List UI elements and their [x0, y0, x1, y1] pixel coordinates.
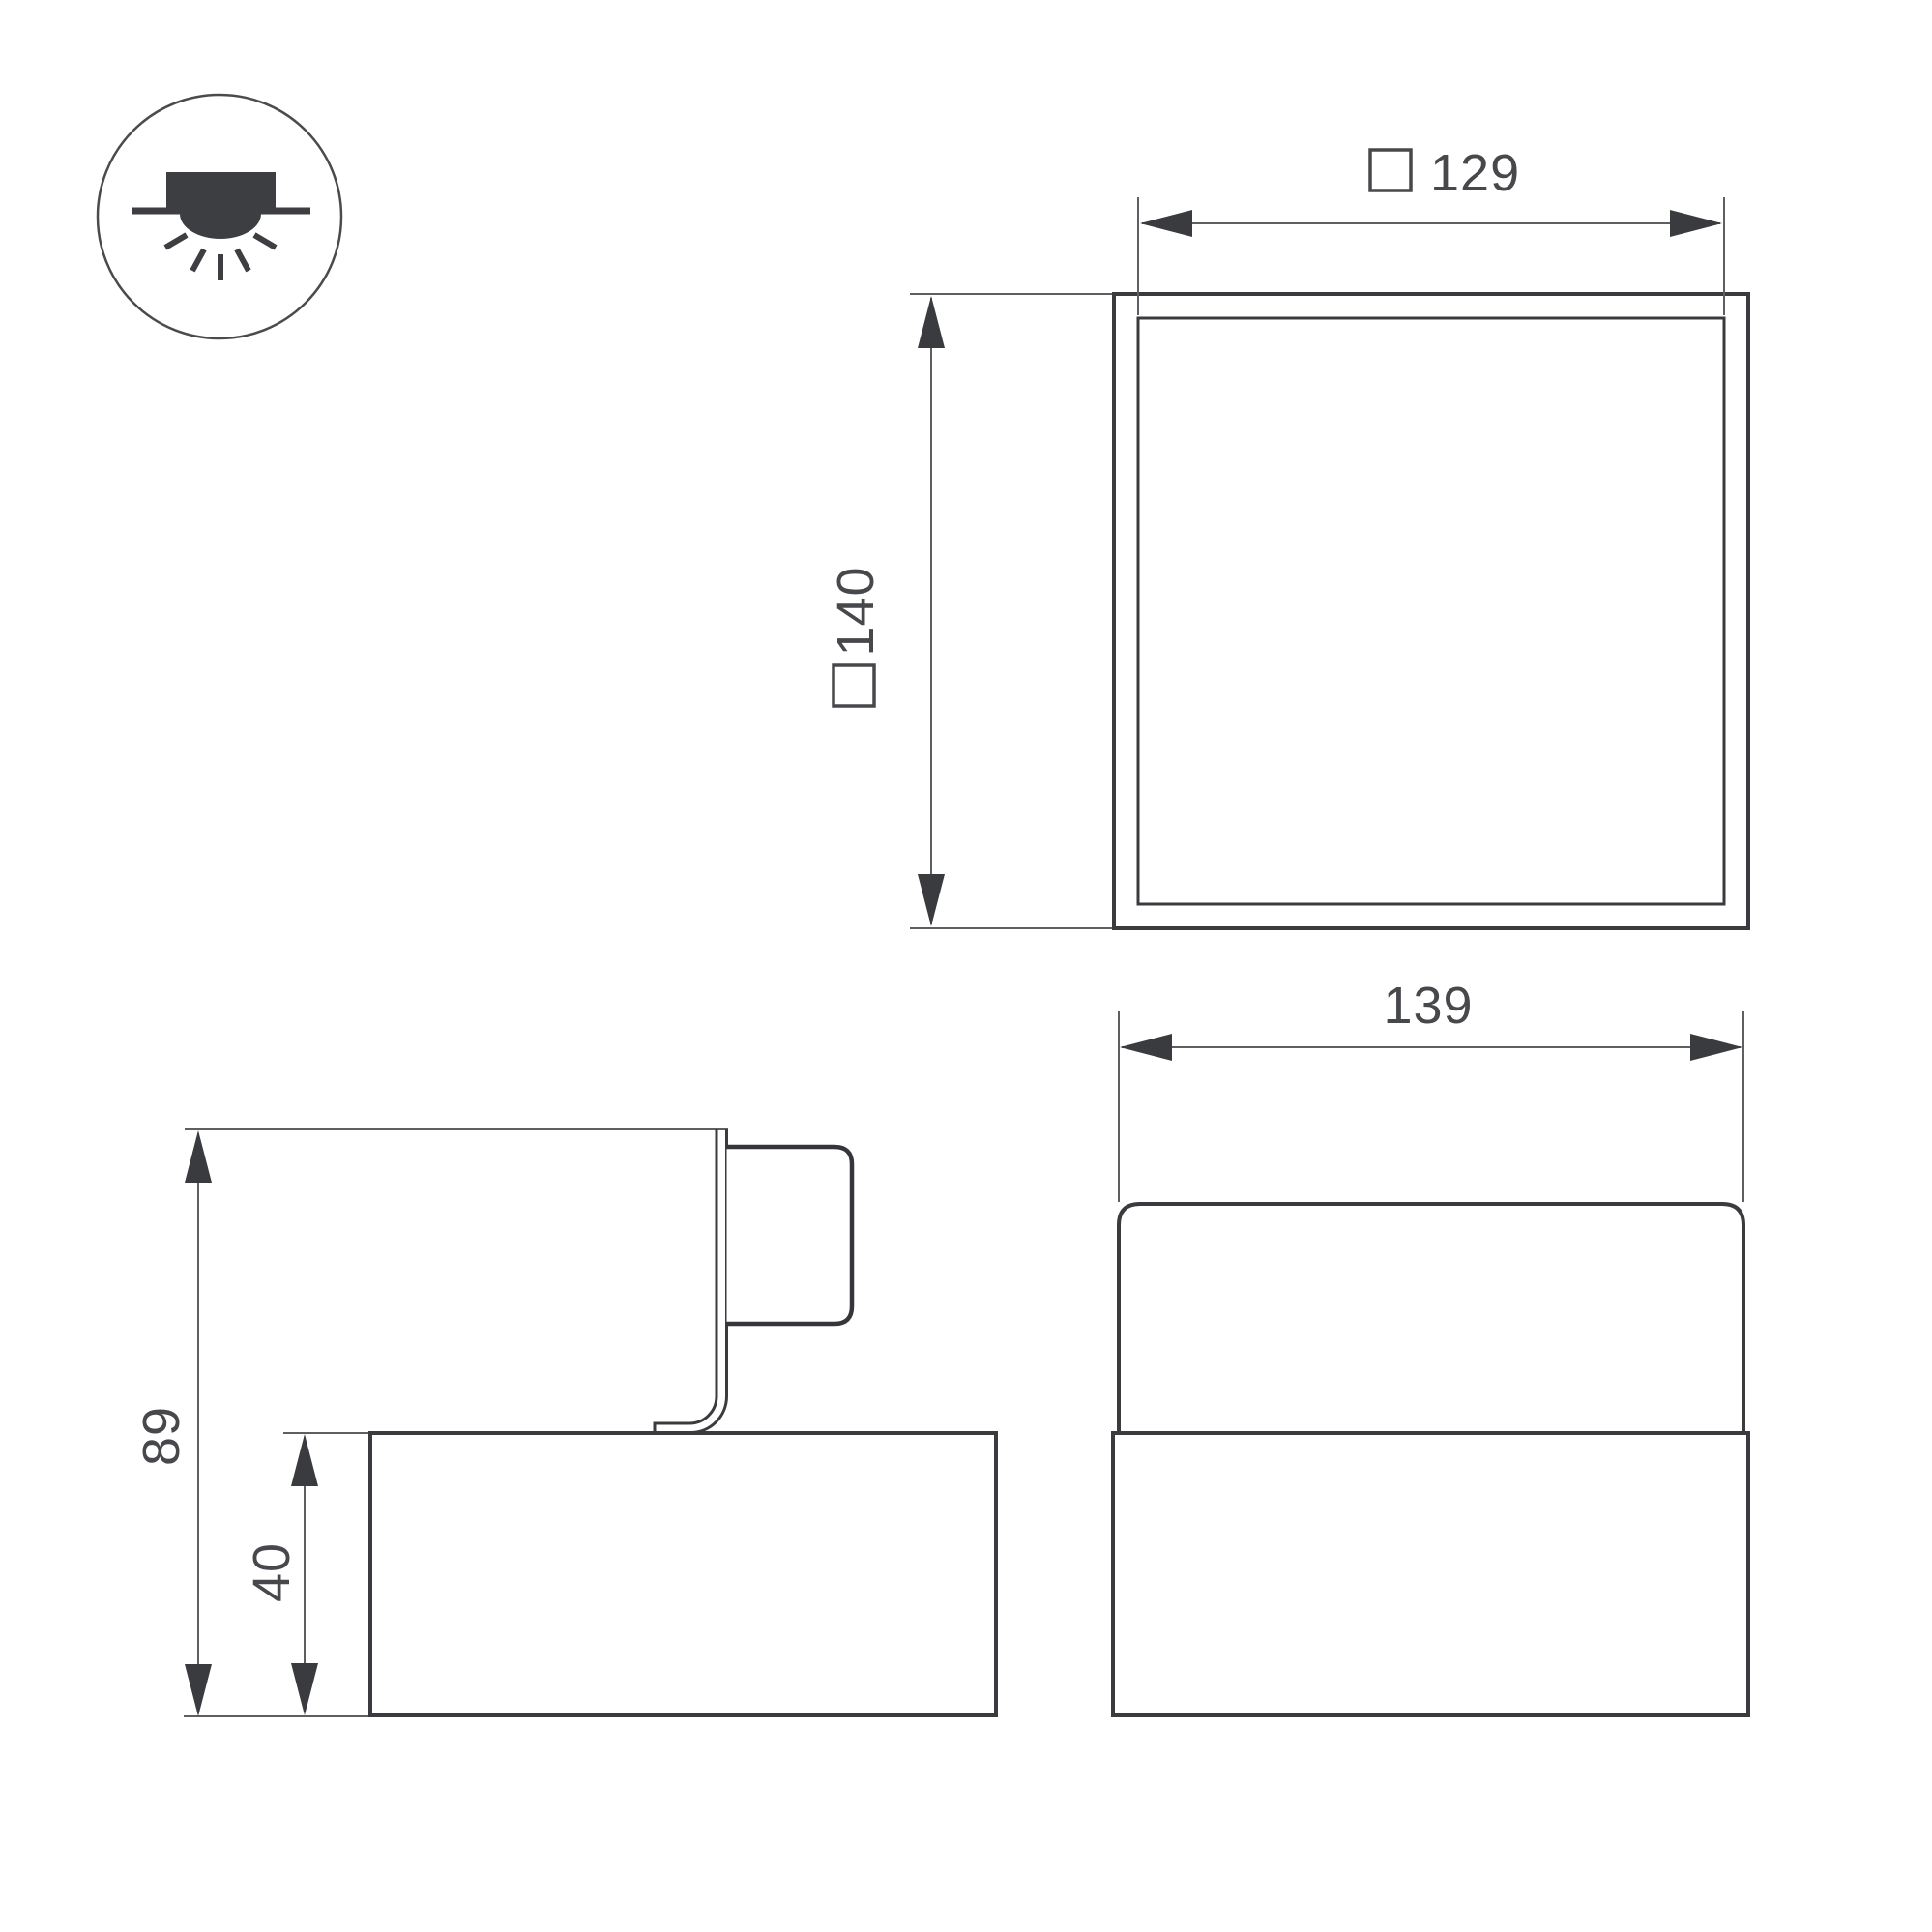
top-view-inner-square: [1138, 318, 1724, 904]
ray-icon: [254, 235, 276, 248]
arrowhead-up-icon: [918, 296, 945, 348]
dimension-label: 40: [243, 1542, 301, 1602]
dimension-label: 139: [1383, 977, 1473, 1035]
top-view: 129 140: [827, 144, 1748, 928]
arrowhead-up-icon: [185, 1130, 212, 1183]
light-rays-icon: [165, 235, 276, 280]
arrowhead-down-icon: [291, 1663, 318, 1715]
square-symbol-icon: [1370, 150, 1411, 190]
drawing-canvas: 129 140 139: [0, 0, 1932, 1932]
dimension-top-width: 129: [1138, 144, 1724, 315]
dimension-label: 89: [132, 1406, 190, 1466]
ray-icon: [165, 235, 187, 248]
square-symbol-icon: [834, 665, 874, 706]
arrowhead-down-icon: [918, 874, 945, 926]
rotated-label-group: 89: [132, 1406, 190, 1466]
dimension-label: 129: [1430, 144, 1520, 202]
rotated-label-group: 140: [827, 566, 885, 706]
dimension-front-width: 139: [1119, 977, 1743, 1202]
fixture-body-icon: [166, 172, 276, 208]
top-view-outer-square: [1114, 294, 1748, 928]
mount-type-icon: [98, 95, 341, 338]
light-dome-icon: [180, 214, 261, 239]
connector-box: [727, 1147, 853, 1324]
rotated-label-group: 40: [243, 1542, 301, 1602]
arrowhead-right-icon: [1670, 210, 1722, 237]
dimension-top-height: 140: [827, 294, 1112, 928]
dimension-label: 140: [827, 566, 885, 656]
ray-icon: [237, 249, 249, 271]
arrowhead-up-icon: [291, 1434, 318, 1486]
front-view-shade: [1119, 1204, 1743, 1434]
front-view: 139: [1113, 977, 1748, 1715]
arrowhead-left-icon: [1120, 1034, 1172, 1061]
ray-icon: [192, 249, 204, 271]
side-view-base: [370, 1433, 996, 1715]
technical-drawing: 129 140 139: [0, 0, 1932, 1932]
arrowhead-down-icon: [185, 1664, 212, 1716]
dimension-side-total-height: 89: [132, 1130, 212, 1716]
side-view: 89 40: [132, 1129, 996, 1716]
arrowhead-left-icon: [1140, 210, 1192, 237]
front-view-base: [1113, 1433, 1748, 1715]
bracket-plate-inner-line: [655, 1129, 717, 1432]
arrowhead-right-icon: [1690, 1034, 1742, 1061]
dimension-side-base-height: 40: [243, 1434, 318, 1715]
